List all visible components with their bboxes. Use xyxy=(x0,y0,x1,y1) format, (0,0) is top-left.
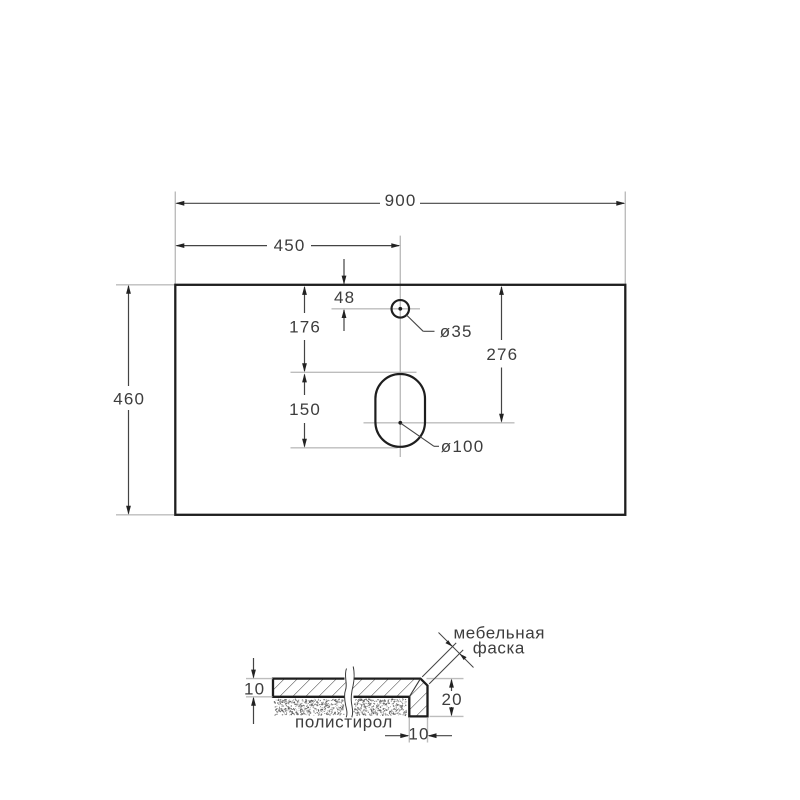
svg-text:10: 10 xyxy=(408,725,429,744)
svg-text:900: 900 xyxy=(385,191,417,210)
svg-text:фаска: фаска xyxy=(473,638,525,657)
svg-text:150: 150 xyxy=(289,400,321,419)
svg-text:276: 276 xyxy=(486,345,518,364)
svg-text:10: 10 xyxy=(244,679,265,698)
svg-text:ø100: ø100 xyxy=(441,437,485,456)
svg-text:460: 460 xyxy=(113,390,145,409)
svg-text:450: 450 xyxy=(274,236,306,255)
svg-text:полистирол: полистирол xyxy=(295,713,393,732)
svg-text:48: 48 xyxy=(334,288,355,307)
svg-text:20: 20 xyxy=(441,690,462,709)
svg-text:176: 176 xyxy=(289,318,321,337)
svg-text:ø35: ø35 xyxy=(440,322,473,341)
